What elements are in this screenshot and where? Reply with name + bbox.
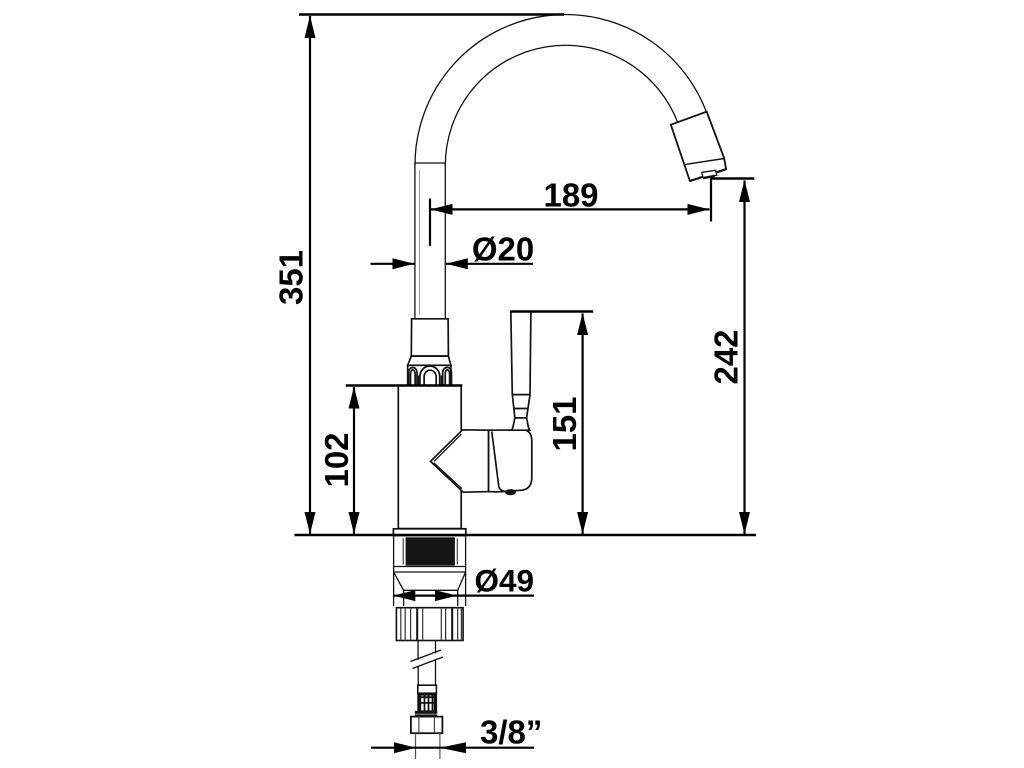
svg-text:351: 351 [273,250,310,305]
svg-text:189: 189 [543,177,598,214]
svg-text:102: 102 [318,432,355,487]
svg-text:3/8”: 3/8” [480,714,542,751]
svg-text:242: 242 [708,329,745,384]
svg-text:Ø49: Ø49 [475,563,535,599]
svg-text:Ø20: Ø20 [472,231,534,268]
svg-text:151: 151 [546,396,583,451]
